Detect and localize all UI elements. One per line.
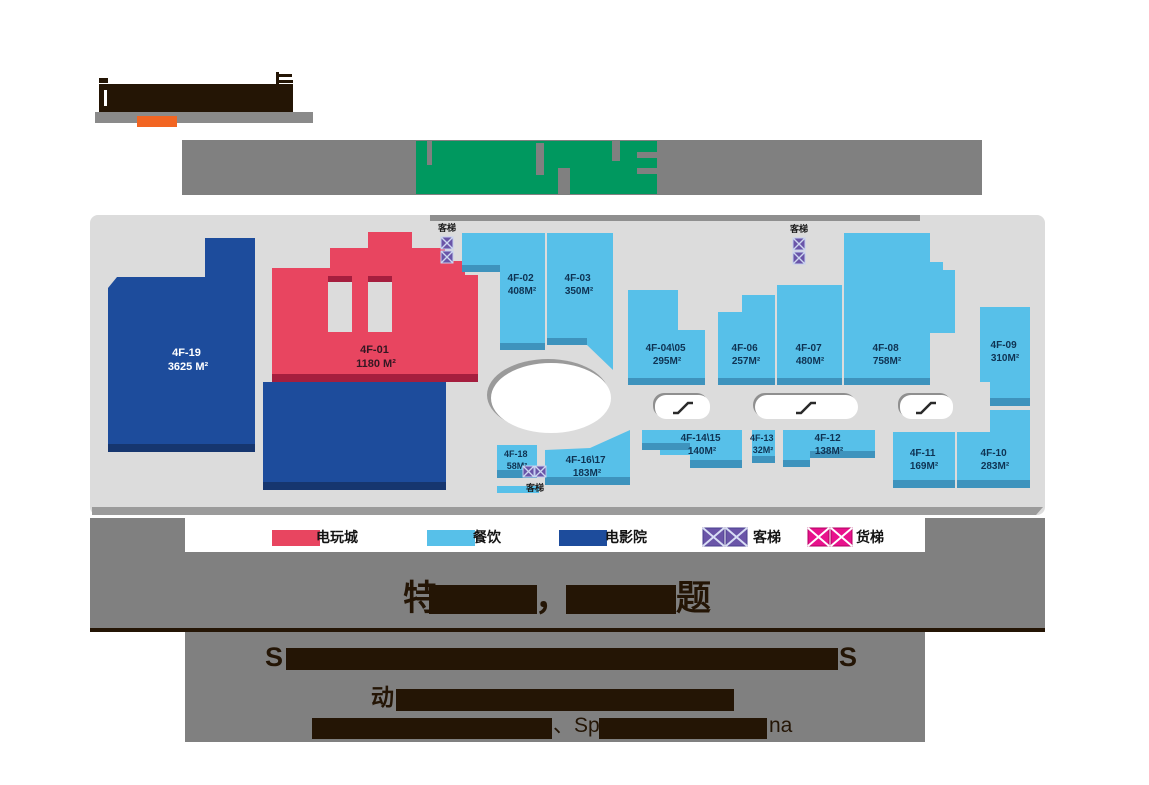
legend-label-cinema: 电影院 (605, 527, 647, 547)
line4-fragment: na (769, 715, 792, 736)
title-glyph-gap (558, 168, 570, 194)
escalator (753, 393, 858, 419)
legend-strip: 电玩城 餐饮 电影院 客梯 货梯 (185, 518, 925, 552)
unit-4F-01-cutout (368, 282, 392, 332)
unit-4F-01-cutout-edge (328, 276, 352, 282)
title-glyph-gap (536, 143, 544, 175)
unit-4F-06-edge (718, 378, 775, 385)
unit-4F-03-edge (547, 338, 587, 345)
unit-4F-01-edge (272, 374, 478, 382)
legend-label-arcade: 电玩城 (316, 527, 358, 547)
logo-redaction-bar (99, 84, 293, 112)
unit-4F-02-edge (462, 265, 500, 272)
slogan-fragment: 题 (676, 581, 711, 616)
unit-4F-14-15-edge (642, 443, 690, 450)
logo-glyph-fragment (279, 74, 292, 77)
unit-4F-11 (893, 432, 955, 488)
legend-label-freight-elevator: 货梯 (856, 527, 884, 547)
plan-top-edge (430, 215, 920, 221)
english-line-redaction (286, 648, 838, 670)
escalator (898, 393, 953, 419)
unit-4F-13-edge (752, 456, 775, 463)
unit-4F-11-edge (893, 480, 955, 488)
unit-4F-12-edge (783, 460, 810, 467)
line3-fragment: 动 (371, 686, 394, 709)
legend-label-dining: 餐饮 (473, 527, 501, 547)
title-glyph-gap (637, 152, 657, 158)
logo-underline-gray (95, 112, 313, 123)
slogan-redaction (429, 585, 537, 614)
logo-glyph-fragment (99, 78, 108, 83)
elevator-label: 客梯 (789, 223, 808, 234)
unit-4F-07 (777, 285, 842, 385)
elevator-label: 客梯 (437, 222, 456, 233)
logo-glyph-fragment (104, 90, 107, 106)
unit-4F-08-edge (844, 378, 930, 385)
elevator-icon (523, 466, 546, 477)
unit-4F-19-edge (263, 482, 446, 490)
unit-4F-02-edge (500, 343, 545, 350)
unit-4F-09-edge (990, 398, 1030, 406)
unit-4F-14-15-edge (690, 460, 742, 468)
passenger-elevator-icon (702, 527, 748, 547)
line3-redaction (396, 689, 734, 711)
floor-plan: 4F-19 3625 M² 4F-01 1180 M² 4F-02 408M² … (90, 215, 1045, 515)
logo-underline-orange (137, 116, 177, 127)
legend-swatch-arcade (272, 530, 320, 546)
english-line-fragment: S (839, 644, 857, 671)
unit-4F-19-edge (108, 444, 255, 452)
poster: 4F-19 3625 M² 4F-01 1180 M² 4F-02 408M² … (0, 0, 1149, 785)
title-glyph-gap (637, 168, 657, 174)
legend-label-passenger-elevator: 客梯 (753, 527, 781, 547)
escalator (653, 393, 710, 419)
line4-redaction (599, 718, 767, 739)
unit-4F-01-cutout (328, 282, 352, 332)
atrium-oval (491, 363, 611, 433)
unit-4F-01-cutout-edge (368, 276, 392, 282)
freight-elevator-icon (807, 527, 853, 547)
slogan-fragment: ， (535, 581, 570, 616)
line4-fragment: 、Sp (553, 715, 600, 736)
unit-4F-04-05-edge (628, 378, 705, 385)
slogan-redaction (566, 585, 676, 614)
title-glyph-gap (427, 141, 432, 165)
logo-glyph-fragment (279, 80, 293, 83)
title-green-redaction (416, 141, 657, 194)
legend-swatch-cinema (559, 530, 607, 546)
unit-4F-07-edge (777, 378, 842, 385)
english-line-fragment: S (265, 644, 283, 671)
line4-redaction (312, 718, 552, 739)
elevator-label: 客梯 (525, 482, 544, 493)
unit-4F-19 (263, 382, 446, 490)
plan-bottom-edge (92, 507, 1036, 515)
unit-4F-10-edge (957, 480, 1030, 488)
legend-swatch-dining (427, 530, 475, 546)
title-glyph-gap (612, 141, 620, 161)
